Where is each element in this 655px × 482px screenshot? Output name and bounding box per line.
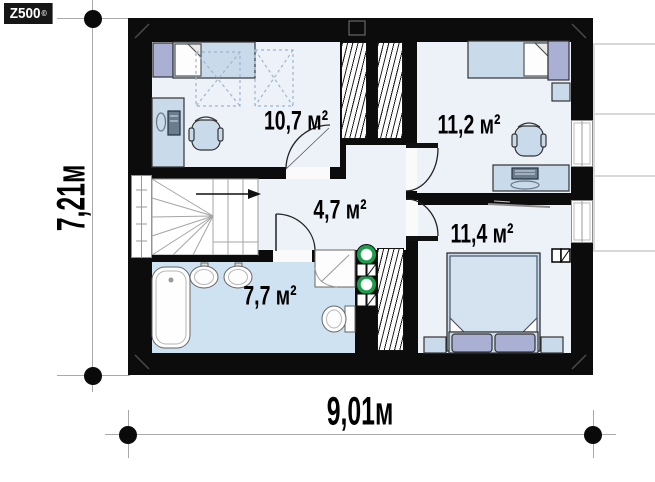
door-swings — [276, 125, 438, 251]
bedroom-top-left-furniture — [152, 42, 293, 167]
door-arc-bathroom — [276, 214, 315, 251]
bed-icon — [468, 41, 550, 78]
room-area-label-bedroom-top-left: 10,7 м² — [264, 106, 328, 137]
nightstand-icon — [541, 337, 563, 353]
roof-grid-cell — [593, 175, 655, 252]
toilet-icon — [322, 306, 355, 332]
wall-vent-squares — [552, 249, 570, 262]
vent-flue-icon — [357, 245, 377, 265]
wardrobe-icon — [548, 41, 569, 80]
vent-flue-icon — [357, 275, 377, 295]
z500-logo: Z500© — [4, 3, 53, 24]
shelf-icon — [488, 201, 550, 207]
nightstand-icon — [552, 83, 570, 101]
chair-icon — [512, 123, 546, 156]
dimension-endpoint-dot — [584, 426, 602, 444]
width-dimension-label: 9,01м — [327, 390, 394, 435]
door-arc-bedroom-top-right — [406, 143, 438, 191]
nightstand-icon — [424, 337, 446, 353]
wardrobe-icon — [153, 43, 173, 77]
desk-icon — [152, 98, 184, 167]
sink-icon — [190, 263, 218, 288]
room-area-label-bedroom-bottom-right: 11,4 м² — [450, 219, 513, 250]
dimension-endpoint-dot — [84, 367, 102, 385]
double-bed-icon — [447, 253, 540, 353]
desk-icon — [493, 165, 569, 191]
chimney-notch — [349, 21, 365, 35]
bed-icon — [173, 42, 255, 78]
shower-icon — [315, 250, 355, 287]
stairs-icon — [152, 179, 261, 262]
dimension-endpoint-dot — [119, 426, 137, 444]
door-arc-bedroom-bottom-right — [406, 199, 438, 241]
roof-grid-cell — [593, 113, 655, 177]
z500-logo-text: Z500 — [10, 5, 41, 22]
ventilation-shaft — [357, 245, 377, 307]
floor-plan: 10,7 м² 11,2 м² 4,7 м² 7,7 м² 11,4 м² — [128, 18, 593, 375]
roof-grid-cell — [593, 43, 655, 115]
dimension-endpoint-dot — [84, 10, 102, 28]
bathtub-icon — [152, 267, 190, 348]
copyright-mark: © — [41, 9, 46, 18]
room-area-label-hall: 4,7 м² — [313, 195, 366, 226]
chair-icon — [189, 117, 223, 150]
room-area-label-bathroom: 7,7 м² — [243, 281, 296, 312]
room-area-label-bedroom-top-right: 11,2 м² — [437, 110, 500, 141]
floor-plan-page: Z500© 7,21м 9,01м — [0, 0, 655, 482]
height-dimension-label: 7,21м — [50, 165, 95, 232]
